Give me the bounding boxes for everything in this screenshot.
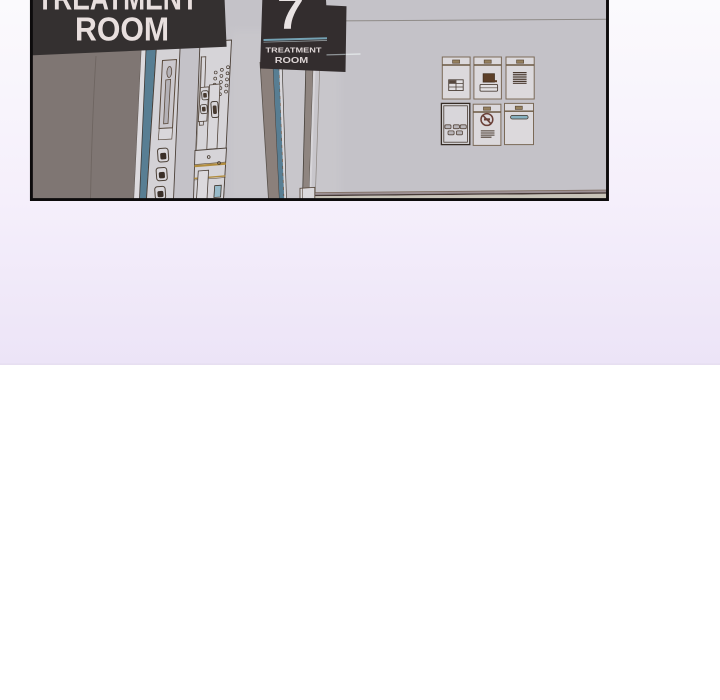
svg-text:TREATMENT: TREATMENT <box>266 46 322 55</box>
svg-text:ROOM: ROOM <box>275 56 309 65</box>
svg-text:ROOM: ROOM <box>75 11 169 48</box>
svg-text:7: 7 <box>277 0 304 40</box>
